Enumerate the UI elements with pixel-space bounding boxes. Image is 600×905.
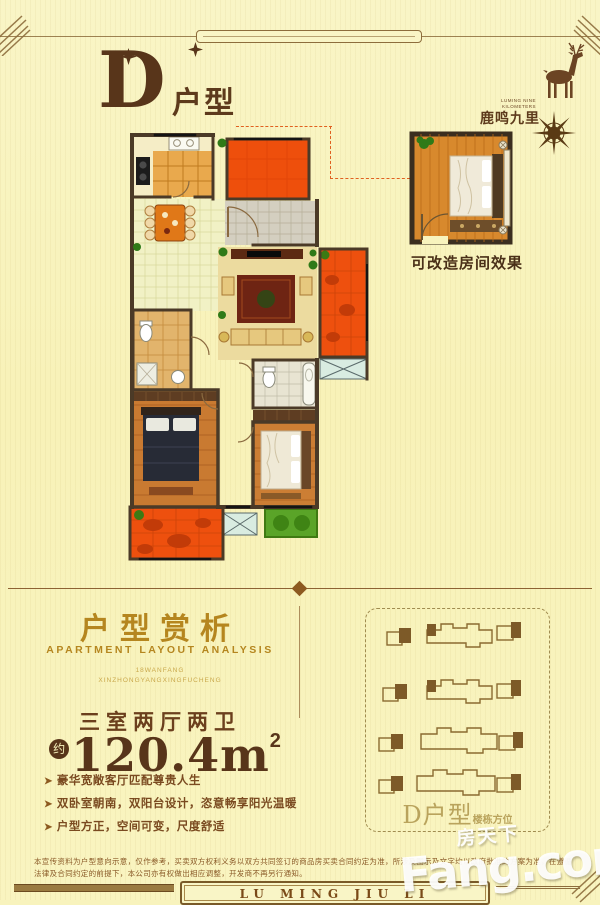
bedroom-second bbox=[253, 410, 317, 507]
bedroom-master bbox=[132, 390, 218, 507]
page-title-letter: D bbox=[98, 42, 166, 120]
divider-diamond-ornament bbox=[292, 581, 308, 597]
area-superscript: 2 bbox=[270, 730, 281, 752]
footer-left-bar bbox=[14, 884, 174, 892]
corner-ornament-top-left bbox=[0, 14, 48, 56]
compass-icon bbox=[531, 110, 577, 156]
main-floor-plan bbox=[115, 125, 370, 565]
converted-room-plan bbox=[408, 128, 515, 250]
feature-item: ➤豪华宽敞客厅匹配尊贵人生 bbox=[44, 772, 304, 788]
analysis-title: 户型赏析 bbox=[40, 604, 280, 648]
sparkle-icon bbox=[188, 42, 203, 57]
feature-list: ➤豪华宽敞客厅匹配尊贵人生 ➤双卧室朝南，双阳台设计，恣意畅享阳光温暖 ➤户型方… bbox=[44, 772, 304, 841]
converted-room-caption: 可改造房间效果 bbox=[392, 252, 542, 273]
bullet-arrow-icon: ➤ bbox=[44, 822, 53, 833]
planter-green bbox=[265, 509, 317, 537]
bullet-arrow-icon: ➤ bbox=[44, 799, 53, 810]
tagline-line1: 18WANFANG bbox=[40, 666, 280, 676]
convertible-room-red bbox=[227, 139, 309, 199]
area-prefix-badge: 约 bbox=[49, 739, 69, 759]
divider-tick bbox=[313, 588, 329, 589]
bullet-arrow-icon: ➤ bbox=[44, 776, 53, 787]
feature-item: ➤户型方正，空间可变，尺度舒适 bbox=[44, 818, 304, 834]
feature-item: ➤双卧室朝南，双阳台设计，恣意畅享阳光温暖 bbox=[44, 795, 304, 811]
kitchen bbox=[134, 135, 213, 197]
top-border-ornament bbox=[196, 30, 422, 43]
tagline-line2: XINZHONGYANGXINGFUCHENG bbox=[40, 676, 280, 686]
bathroom-guest bbox=[133, 310, 191, 390]
vertical-divider bbox=[299, 606, 300, 718]
feature-text: 户型方正，空间可变，尺度舒适 bbox=[57, 821, 225, 833]
balcony-south bbox=[130, 507, 223, 559]
balcony-east bbox=[320, 249, 367, 357]
bathroom-master bbox=[253, 360, 317, 408]
feature-text: 豪华宽敞客厅匹配尊贵人生 bbox=[57, 775, 201, 787]
flyer-page: D 户型 LUMING NINE KILOMETERS 鹿鸣九里 bbox=[0, 0, 600, 900]
analysis-subtitle: APARTMENT LAYOUT ANALYSIS bbox=[30, 644, 290, 656]
page-title-suffix: 户型 bbox=[172, 78, 236, 122]
deer-icon bbox=[538, 40, 586, 102]
living-room bbox=[218, 247, 318, 360]
feature-text: 双卧室朝南，双阳台设计，恣意畅享阳光温暖 bbox=[57, 798, 297, 810]
watermark-en: Fang.com bbox=[398, 838, 600, 898]
analysis-tagline: 18WANFANG XINZHONGYANGXINGFUCHENG bbox=[40, 666, 280, 686]
divider-tick bbox=[270, 588, 286, 589]
dining-room bbox=[134, 199, 225, 311]
entry-hall bbox=[225, 201, 317, 245]
